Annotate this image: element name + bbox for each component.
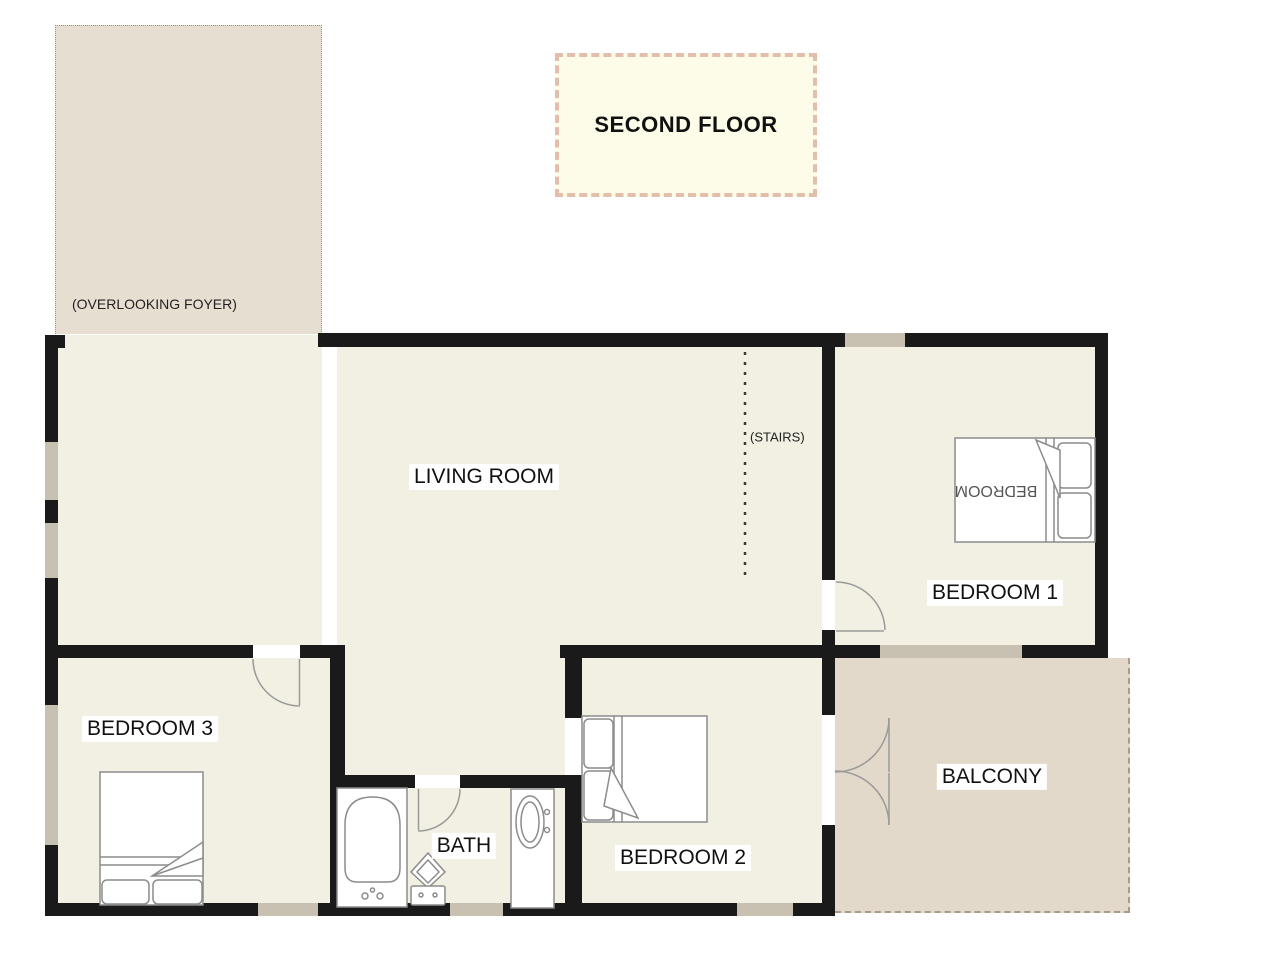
wall-segment xyxy=(330,645,345,916)
wall-segment xyxy=(45,335,58,442)
floor-plan: (OVERLOOKING FOYER) SECOND FLOOR xyxy=(0,0,1280,960)
bath-label: BATH xyxy=(432,833,496,859)
stairs-label: (STAIRS) xyxy=(750,430,805,445)
window xyxy=(845,333,905,347)
overlooking-foyer-area xyxy=(55,25,322,334)
wall-segment xyxy=(565,645,582,718)
overlooking-foyer-label: (OVERLOOKING FOYER) xyxy=(72,296,237,312)
wall-segment xyxy=(1095,333,1108,658)
room-hallway xyxy=(345,645,565,775)
floor-title-box: SECOND FLOOR xyxy=(555,53,817,197)
wall-segment xyxy=(45,578,58,705)
window xyxy=(880,645,1022,658)
living-room-label: LIVING ROOM xyxy=(409,464,559,490)
wall-segment xyxy=(822,333,835,580)
window xyxy=(45,442,58,500)
bedroom3-label: BEDROOM 3 xyxy=(82,716,218,742)
wall-segment xyxy=(318,333,832,347)
window xyxy=(450,903,503,916)
wall-segment xyxy=(503,903,737,916)
wall-segment xyxy=(45,500,58,523)
room-loft xyxy=(58,335,322,645)
room-bedroom3 xyxy=(58,658,330,903)
wall-segment xyxy=(45,903,258,916)
room-living xyxy=(337,347,822,645)
wall-segment xyxy=(822,645,880,658)
wall-segment xyxy=(45,645,253,658)
bedroom1-label: BEDROOM 1 xyxy=(927,580,1063,606)
balcony-label: BALCONY xyxy=(937,764,1047,790)
bedroom2-label: BEDROOM 2 xyxy=(615,845,751,871)
wall-segment xyxy=(905,333,1108,347)
wall-segment xyxy=(1022,645,1108,658)
wall-segment xyxy=(822,658,835,715)
wall-segment xyxy=(460,775,565,788)
bed-label: BEDROOM xyxy=(955,481,1038,499)
wall-segment xyxy=(345,775,415,788)
window xyxy=(258,903,318,916)
window xyxy=(737,903,793,916)
window xyxy=(45,523,58,578)
window xyxy=(45,705,58,845)
floor-title: SECOND FLOOR xyxy=(594,112,777,138)
wall-segment xyxy=(560,645,835,658)
wall-segment xyxy=(822,825,835,916)
wall-segment xyxy=(565,775,582,916)
